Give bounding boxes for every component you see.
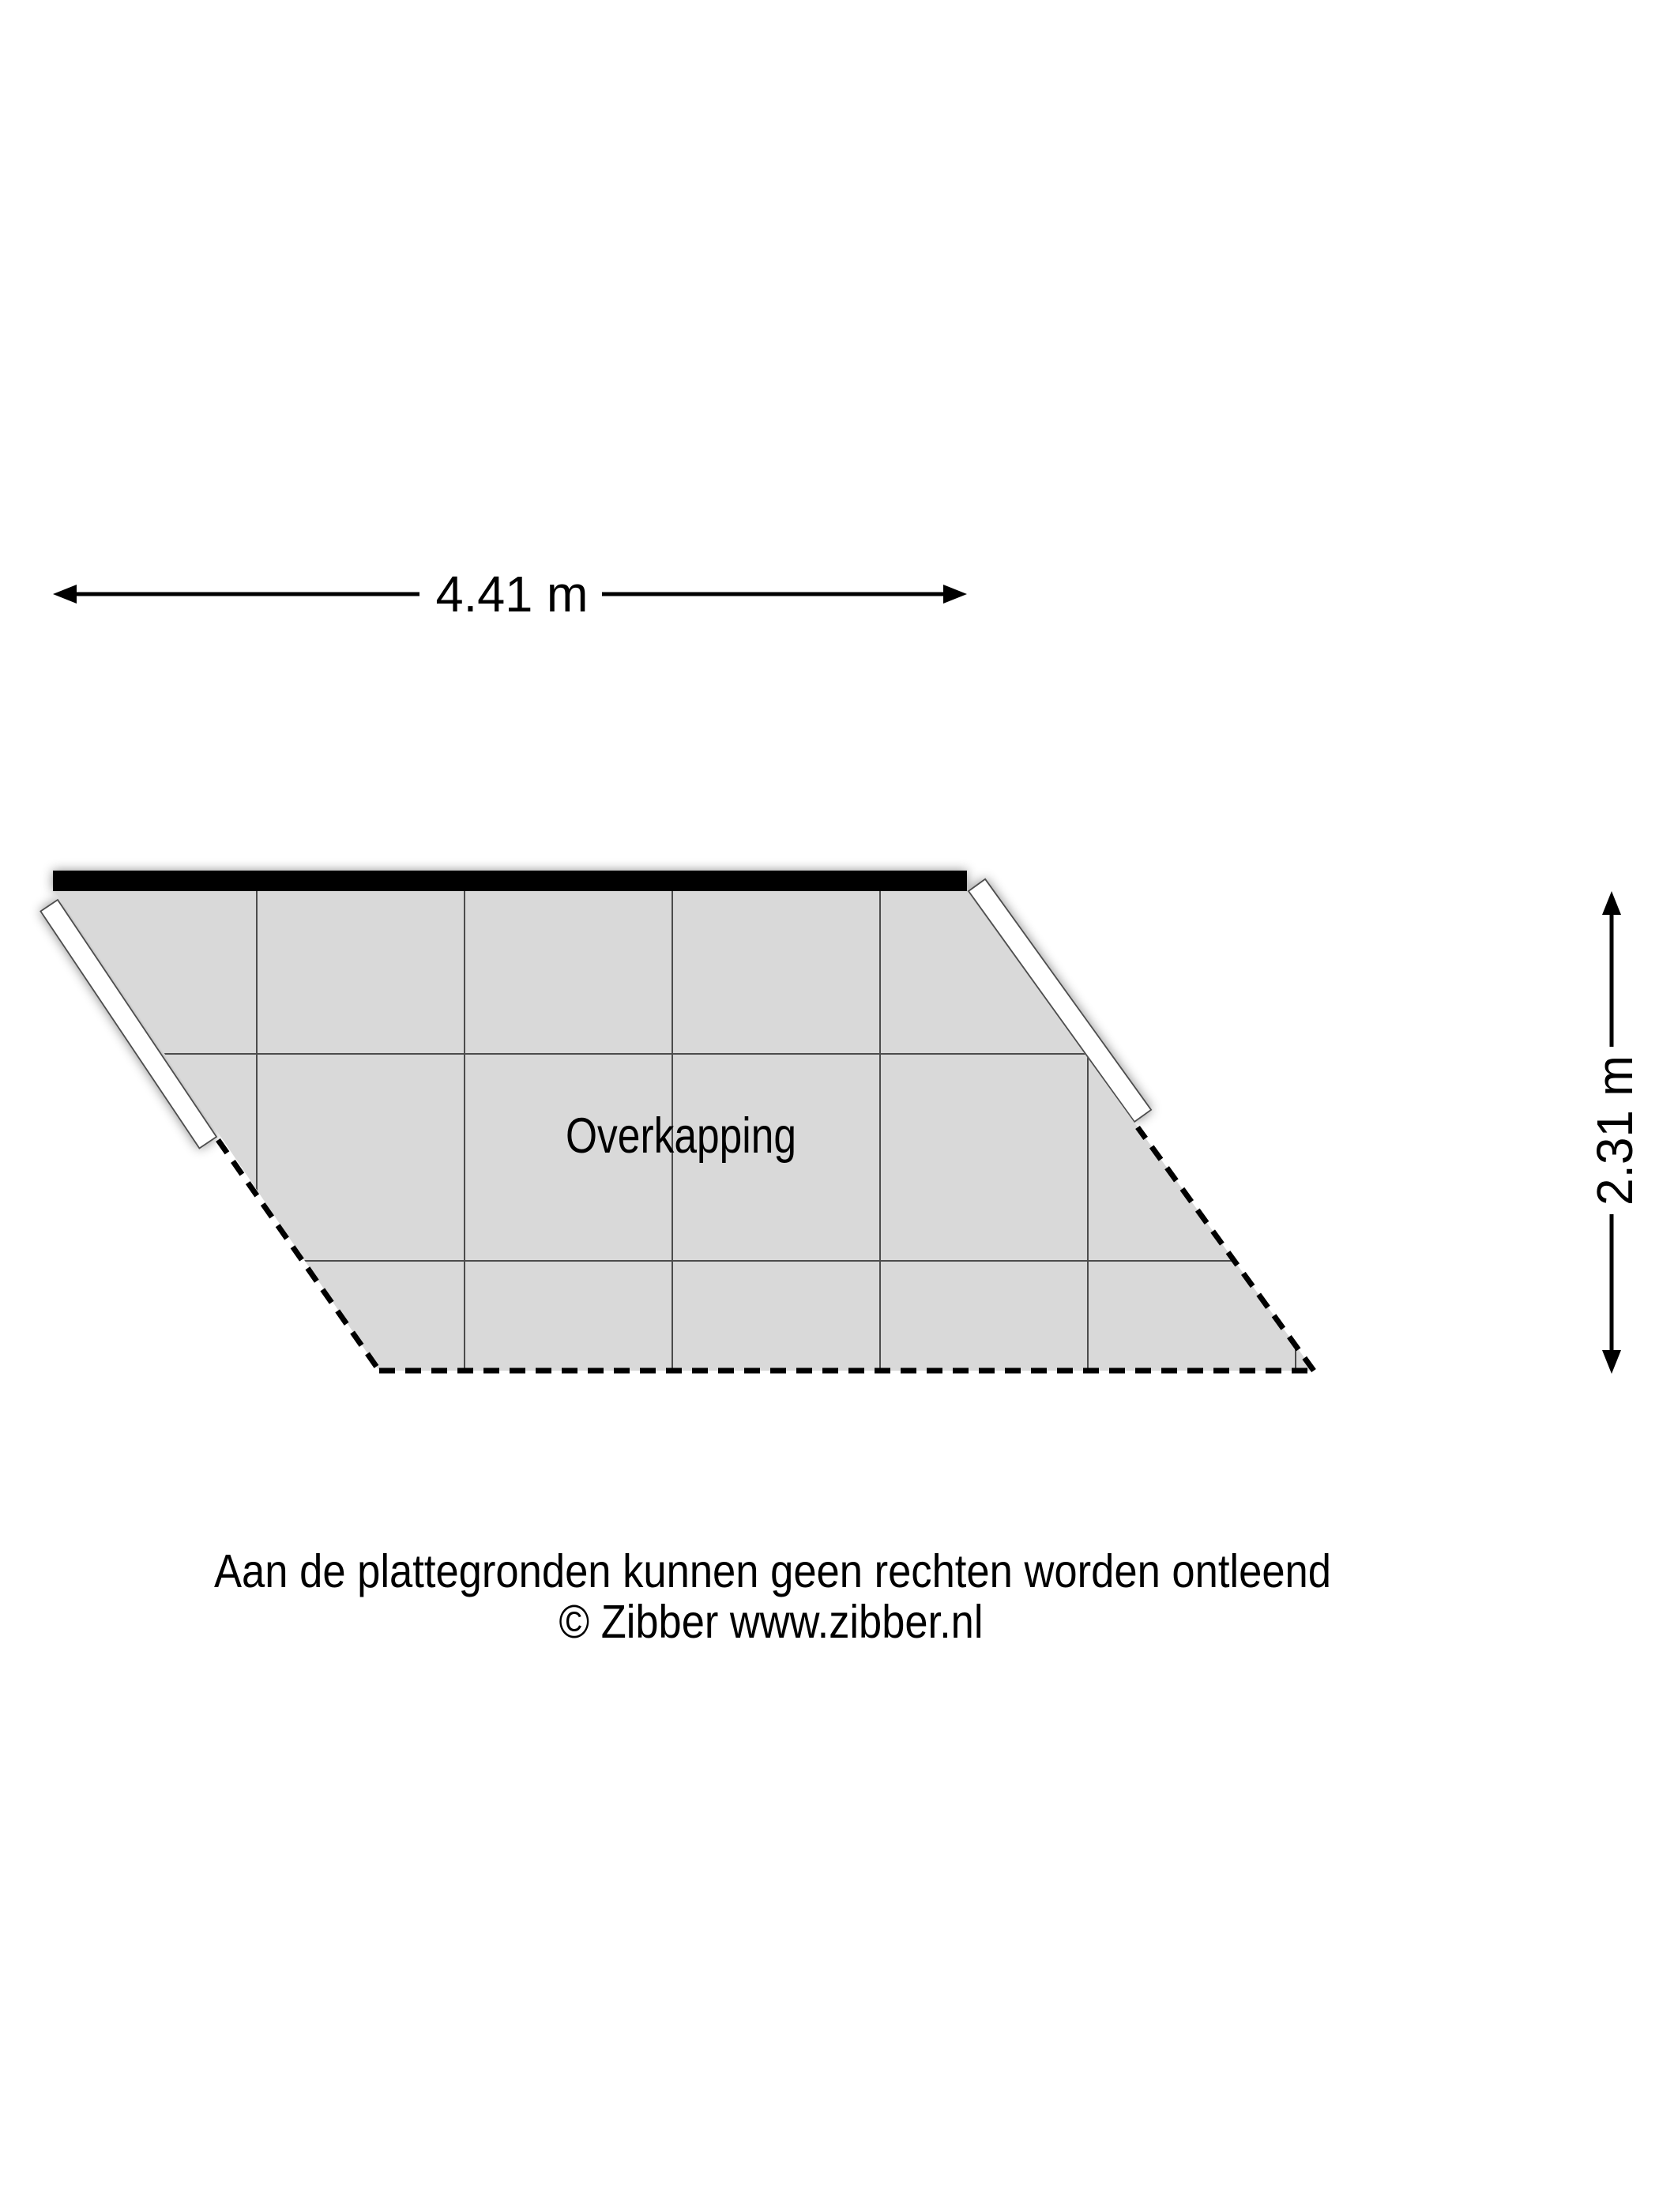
svg-text:© Zibber www.zibber.nl: © Zibber www.zibber.nl (559, 1596, 984, 1648)
svg-text:2.31 m: 2.31 m (1586, 1055, 1643, 1206)
svg-text:Aan de plattegronden kunnen ge: Aan de plattegronden kunnen geen rechten… (214, 1545, 1331, 1597)
svg-text:Overkapping: Overkapping (566, 1108, 796, 1164)
svg-text:4.41 m: 4.41 m (436, 566, 589, 623)
